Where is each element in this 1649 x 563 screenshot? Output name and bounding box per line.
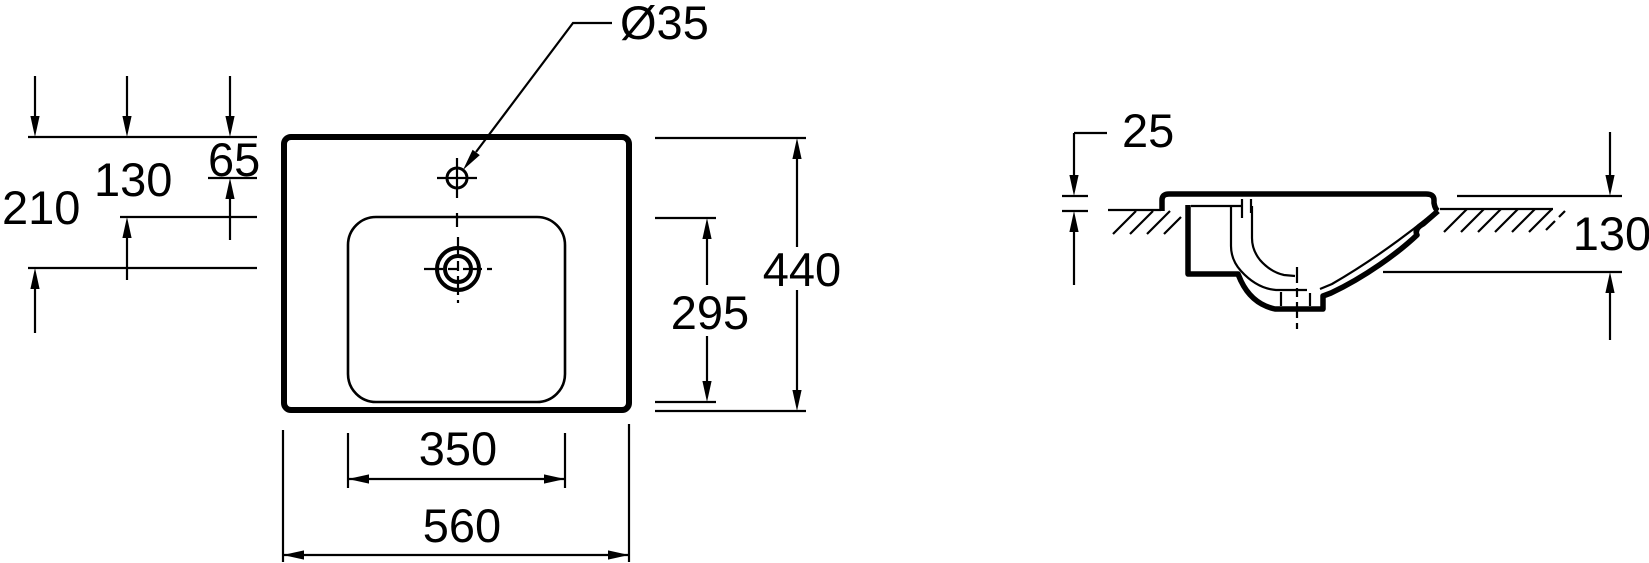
hatch-left: [1113, 211, 1181, 234]
basin-bowl-outline: [348, 217, 565, 402]
dim-440-label: 440: [763, 243, 841, 296]
dim-295-label: 295: [671, 286, 749, 339]
dim-underrim-depth: 130: [1383, 132, 1649, 340]
dim-25-label: 25: [1122, 104, 1174, 157]
dim-rim-height: 25: [1062, 104, 1174, 285]
bowl-outer-profile: [1188, 205, 1438, 309]
leader-arrowhead: [463, 150, 480, 170]
dim-right-depths: 440 295: [655, 138, 841, 411]
drain-outlet-marks: [1281, 292, 1310, 306]
dim-350-label: 350: [419, 422, 497, 475]
basin-section-profile: [1162, 194, 1438, 329]
faucet-diameter-label: Ø35: [620, 0, 709, 49]
rim-profile: [1162, 194, 1438, 211]
overflow-slot-marks: [1242, 199, 1251, 218]
washbasin-dimension-drawing: Ø35 65 130 210: [0, 0, 1649, 563]
overflow-channel-inner: [1252, 206, 1295, 276]
dim-560-label: 560: [423, 499, 501, 552]
dim-210-label: 210: [2, 181, 80, 234]
side-section-view: 25 130: [1062, 104, 1649, 340]
dim-bottom-widths: 350 560: [283, 422, 629, 562]
drain-center-mark: [424, 237, 492, 303]
dim-left-offsets: 65 130 210: [2, 76, 260, 333]
faucet-hole-mark: [437, 158, 477, 198]
counter-hatching: [1108, 209, 1565, 234]
top-view: Ø35 65 130 210: [2, 0, 841, 562]
hatch-right: [1444, 209, 1565, 232]
dim-65-label: 65: [208, 133, 260, 186]
dim-130-right-label: 130: [1573, 207, 1649, 260]
drawing-svg: Ø35 65 130 210: [0, 0, 1649, 563]
leader-line: [476, 23, 612, 152]
dim-faucet-diameter: Ø35: [463, 0, 709, 170]
dim-130-left-label: 130: [94, 153, 172, 206]
bowl-inner-surface: [1320, 216, 1430, 289]
